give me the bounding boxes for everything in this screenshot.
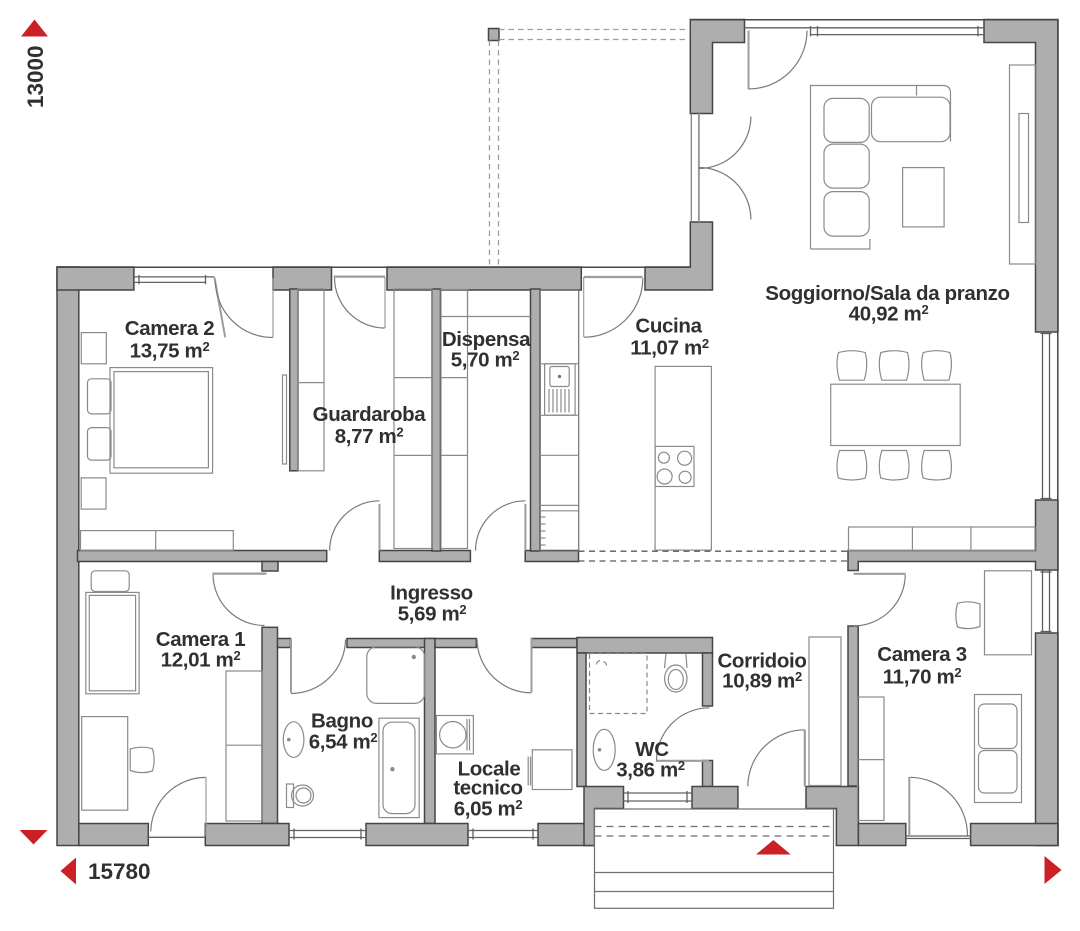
svg-text:Camera 2: Camera 2 [125,317,215,340]
svg-text:6,54 m2: 6,54 m2 [309,730,378,754]
svg-text:40,92 m2: 40,92 m2 [849,302,929,326]
svg-text:5,70 m2: 5,70 m2 [451,348,520,372]
svg-text:10,89 m2: 10,89 m2 [722,669,802,693]
svg-text:12,01 m2: 12,01 m2 [161,648,241,672]
svg-text:13,75 m2: 13,75 m2 [130,339,210,363]
svg-text:11,07 m2: 11,07 m2 [630,336,709,360]
svg-text:Bagno: Bagno [311,710,373,733]
svg-text:3,86 m2: 3,86 m2 [616,758,685,782]
svg-text:Cucina: Cucina [635,315,702,338]
svg-text:6,05 m2: 6,05 m2 [454,797,523,821]
svg-text:Camera 3: Camera 3 [877,643,967,666]
svg-text:15780: 15780 [88,859,151,884]
svg-text:Guardaroba: Guardaroba [313,403,427,426]
svg-text:8,77 m2: 8,77 m2 [335,425,404,449]
svg-text:11,70 m2: 11,70 m2 [883,665,962,689]
svg-text:13000: 13000 [23,45,48,108]
svg-text:5,69 m2: 5,69 m2 [398,602,467,626]
svg-text:tecnico: tecnico [453,777,522,800]
